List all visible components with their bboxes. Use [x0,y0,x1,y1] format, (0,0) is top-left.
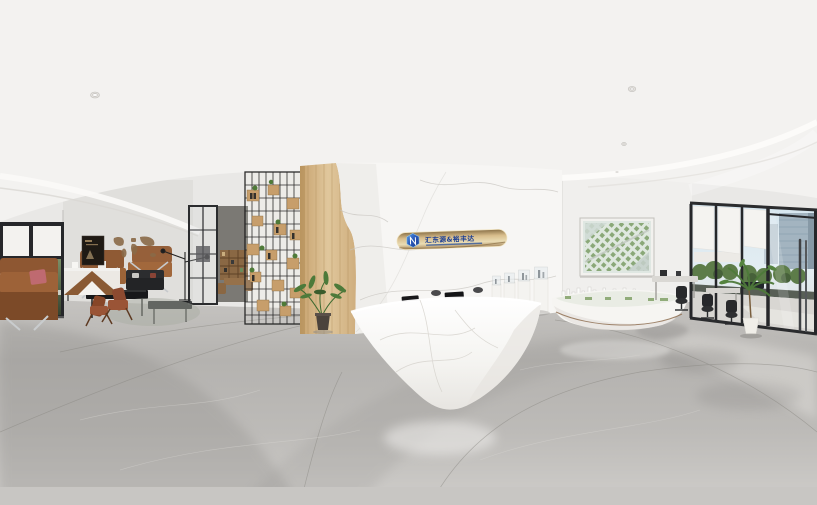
black-sofa [126,270,164,290]
brand-sign: 汇东源&裕丰达 [397,229,508,250]
panorama-photo: 汇东源&裕丰达 [0,0,817,505]
leather-sofa [0,258,58,330]
brand-sign-text: 汇东源&裕丰达 [425,234,475,245]
right-glazing [690,203,817,334]
desk-monitor [660,270,667,276]
wood-table [224,278,246,285]
glass-partition [189,206,253,304]
masterplan-painting [580,218,654,278]
wood-chair [217,283,226,294]
roller-shades [693,206,766,254]
grid-display-shelf [245,172,303,324]
wall-poster [82,236,104,265]
pink-pillow [29,269,47,285]
panorama-canvas: 汇东源&裕丰达 [0,0,817,505]
